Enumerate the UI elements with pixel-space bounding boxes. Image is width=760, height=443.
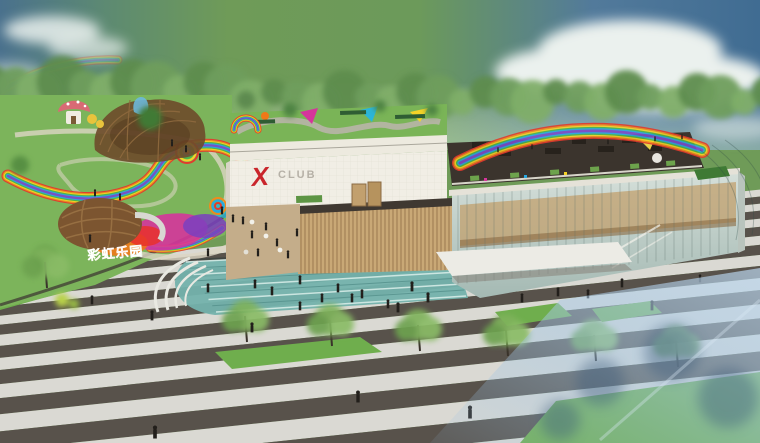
person-figure — [221, 206, 224, 214]
person-figure — [150, 310, 153, 320]
person-head — [426, 292, 429, 295]
person-head — [153, 426, 157, 430]
person-head — [699, 274, 702, 277]
person-body — [232, 217, 234, 223]
person-body — [242, 219, 244, 225]
person-body — [321, 296, 324, 302]
person-head — [296, 228, 299, 231]
person-head — [410, 281, 413, 284]
person-head — [150, 310, 153, 313]
person-figure — [387, 299, 390, 308]
person-body — [171, 141, 173, 146]
person-body — [89, 237, 91, 243]
person-body — [251, 233, 253, 239]
tree-crown — [307, 314, 329, 336]
deck-hedge — [296, 195, 322, 203]
person-head — [185, 145, 187, 147]
person-figure — [199, 153, 201, 160]
person-figure — [254, 279, 257, 288]
person-head — [607, 139, 609, 141]
person-figure — [356, 390, 360, 402]
person-head — [207, 248, 210, 251]
person-body — [411, 284, 414, 291]
person-head — [171, 139, 173, 141]
person-body — [221, 209, 223, 215]
person-figure — [287, 250, 290, 258]
person-body — [296, 231, 298, 237]
person-figure — [361, 289, 364, 298]
person-figure — [119, 193, 121, 200]
person-head — [321, 293, 324, 296]
logo-x: X — [248, 161, 271, 192]
render-canvas: 彩 虹 乐 园 — [0, 0, 760, 443]
person-figure — [185, 145, 187, 152]
person-head — [254, 279, 257, 282]
person-head — [351, 293, 354, 296]
person-body — [497, 149, 498, 153]
umbrella-mushroom — [96, 120, 104, 128]
person-figure — [207, 248, 210, 256]
person-head — [681, 134, 683, 136]
person-body — [207, 286, 210, 292]
person-body — [427, 295, 430, 302]
person-head — [396, 302, 399, 305]
person-body — [531, 146, 532, 150]
person-figure — [426, 292, 429, 302]
person-head — [257, 248, 260, 251]
person-body — [265, 225, 267, 231]
person-figure — [153, 426, 157, 439]
person-body — [251, 325, 254, 332]
person-figure — [257, 248, 260, 256]
person-head — [299, 275, 302, 278]
park-sign-char: 虹 — [101, 246, 115, 262]
person-body — [356, 394, 359, 402]
louver-wall — [298, 198, 452, 274]
person-figure — [171, 139, 173, 146]
person-body — [153, 429, 157, 438]
person-head — [521, 293, 524, 296]
person-body — [207, 251, 209, 257]
deck-kiosk — [368, 182, 381, 206]
person-figure — [251, 230, 254, 238]
person-figure — [410, 281, 413, 291]
building-side-face — [738, 171, 745, 253]
person-body — [351, 296, 354, 302]
person-head — [587, 289, 590, 292]
person-body — [621, 281, 624, 287]
tree-crown — [45, 254, 69, 278]
park-sign-char: 园 — [129, 243, 143, 259]
person-figure — [337, 283, 340, 292]
tree-crown — [395, 319, 417, 341]
person-head — [531, 144, 533, 146]
person-head — [232, 214, 235, 217]
scene-svg: 彩 虹 乐 园 — [0, 0, 760, 443]
person-head — [276, 238, 279, 241]
person-body — [199, 155, 201, 160]
haze-tree — [540, 400, 580, 440]
person-figure — [654, 136, 656, 141]
person-head — [287, 250, 290, 253]
person-body — [607, 141, 608, 145]
person-figure — [94, 189, 96, 196]
person-head — [361, 289, 364, 292]
round-table — [652, 153, 662, 163]
person-figure — [250, 322, 253, 332]
person-body — [397, 305, 400, 312]
person-head — [265, 222, 268, 225]
person-body — [387, 302, 390, 308]
person-figure — [351, 293, 354, 302]
tree-crown — [222, 310, 244, 332]
person-head — [271, 286, 274, 289]
haze-tree — [644, 324, 700, 380]
person-body — [185, 147, 187, 152]
person-body — [151, 313, 154, 320]
person-head — [199, 153, 201, 155]
person-head — [557, 287, 560, 290]
person-figure — [497, 147, 499, 152]
person-body — [257, 251, 259, 257]
person-body — [276, 241, 278, 247]
person-body — [337, 286, 340, 292]
person-figure — [89, 234, 92, 242]
person-head — [337, 283, 340, 286]
tree-crown — [330, 312, 354, 336]
person-figure — [91, 295, 94, 304]
person-body — [299, 278, 302, 284]
deck-kiosk — [352, 184, 366, 206]
person-figure — [521, 293, 524, 302]
person-figure — [271, 286, 274, 295]
haze-tree — [698, 368, 758, 428]
person-body — [287, 253, 289, 259]
person-head — [299, 301, 302, 304]
person-body — [654, 138, 655, 142]
park-sign-char: 乐 — [115, 244, 129, 260]
person-head — [94, 189, 96, 191]
person-head — [251, 230, 254, 233]
person-figure — [299, 301, 302, 310]
person-figure — [242, 216, 245, 224]
person-head — [250, 322, 253, 325]
logo-club: CLUB — [278, 169, 317, 181]
person-figure — [396, 302, 399, 312]
person-body — [521, 296, 524, 302]
person-head — [207, 283, 210, 286]
tree-crown — [483, 324, 505, 346]
person-figure — [557, 287, 560, 296]
person-head — [221, 206, 224, 209]
person-head — [497, 147, 499, 149]
tree-crown — [22, 256, 44, 278]
park-sign-char: 彩 — [86, 247, 101, 263]
person-head — [387, 299, 390, 302]
tree-crown — [245, 308, 269, 332]
person-body — [91, 298, 94, 304]
person-figure — [607, 139, 609, 144]
person-body — [681, 136, 682, 140]
person-figure — [276, 238, 279, 246]
tree-crown — [418, 317, 442, 341]
person-body — [361, 292, 364, 298]
person-body — [254, 282, 257, 288]
person-figure — [531, 144, 533, 149]
person-figure — [299, 275, 302, 284]
person-head — [89, 234, 92, 237]
person-head — [654, 136, 656, 138]
person-figure — [321, 293, 324, 302]
person-figure — [232, 214, 235, 222]
person-head — [242, 216, 245, 219]
person-figure — [296, 228, 299, 236]
person-figure — [681, 134, 683, 139]
person-head — [119, 193, 121, 195]
person-head — [621, 278, 624, 281]
umbrella-mushroom — [87, 114, 97, 124]
person-head — [356, 390, 360, 394]
person-figure — [207, 283, 210, 292]
person-body — [557, 290, 560, 296]
person-body — [119, 195, 121, 200]
person-body — [299, 304, 302, 310]
person-figure — [265, 222, 268, 230]
person-body — [94, 191, 96, 196]
person-body — [271, 289, 274, 295]
person-head — [91, 295, 94, 298]
haze-tree — [576, 358, 624, 406]
person-figure — [621, 278, 624, 287]
